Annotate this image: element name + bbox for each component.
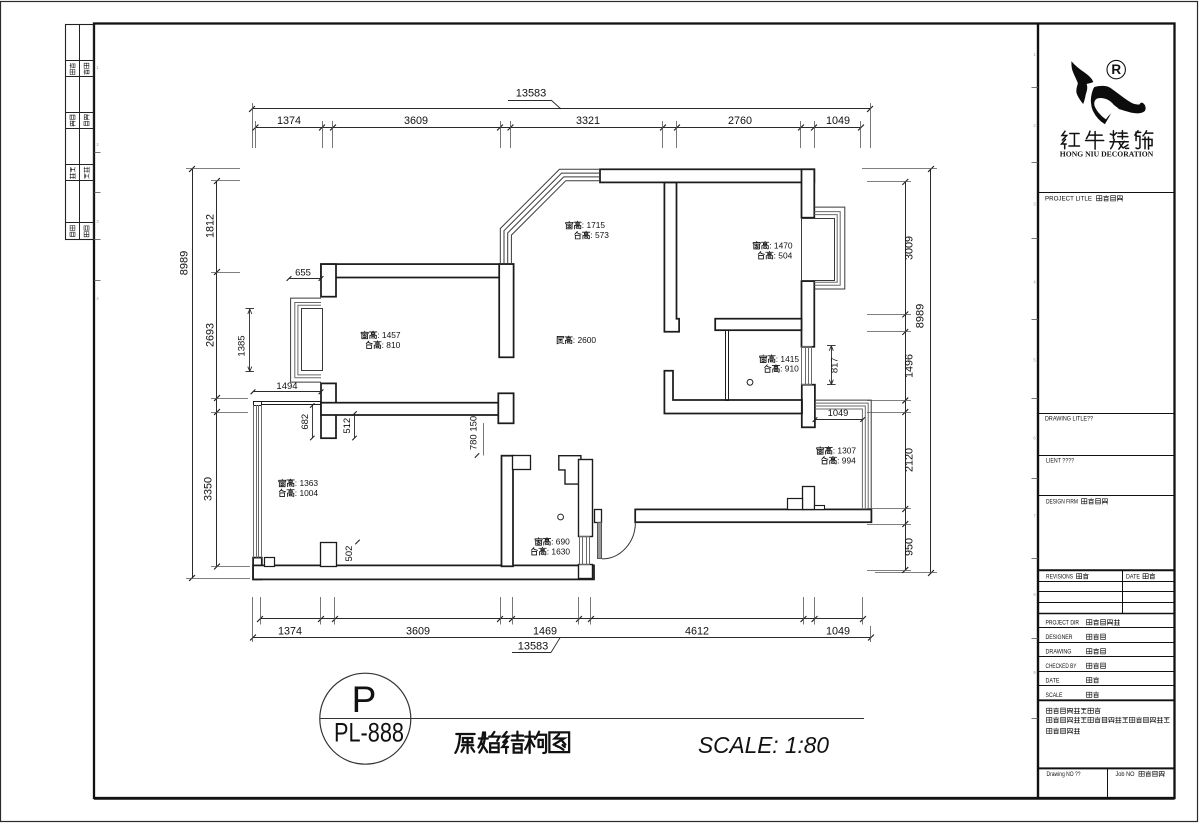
svg-text:2120: 2120 bbox=[904, 448, 916, 472]
svg-text:DRAWING: DRAWING bbox=[1046, 649, 1072, 656]
svg-text:2760: 2760 bbox=[728, 115, 752, 127]
svg-text:Job NO: Job NO bbox=[1116, 771, 1135, 778]
svg-text:PROJECT LITLE: PROJECT LITLE bbox=[1045, 196, 1092, 203]
svg-text:3321: 3321 bbox=[576, 115, 600, 127]
svg-text:1385: 1385 bbox=[237, 335, 248, 356]
svg-text:CHECKED BY: CHECKED BY bbox=[1046, 663, 1077, 670]
svg-text:3609: 3609 bbox=[406, 626, 430, 638]
svg-text:13583: 13583 bbox=[518, 641, 549, 653]
svg-text:: 810: : 810 bbox=[382, 340, 401, 350]
svg-text:: 690: : 690 bbox=[551, 537, 570, 547]
svg-text:3350: 3350 bbox=[203, 477, 215, 501]
svg-text:655: 655 bbox=[295, 268, 311, 279]
svg-text:: 994: : 994 bbox=[837, 455, 856, 465]
svg-text:DESIGNER: DESIGNER bbox=[1046, 634, 1073, 641]
svg-text:R: R bbox=[1111, 62, 1121, 77]
svg-text:1049: 1049 bbox=[828, 408, 849, 418]
svg-text:: 1470: : 1470 bbox=[769, 240, 793, 250]
svg-text:DATE: DATE bbox=[1126, 573, 1140, 580]
svg-text:1812: 1812 bbox=[205, 214, 217, 238]
svg-text:: 1307: : 1307 bbox=[833, 446, 857, 456]
svg-text:DATE: DATE bbox=[1046, 677, 1060, 684]
svg-text:P: P bbox=[352, 679, 377, 720]
svg-text:3009: 3009 bbox=[904, 236, 916, 260]
svg-text:: 573: : 573 bbox=[590, 230, 609, 240]
svg-text:950: 950 bbox=[904, 538, 916, 556]
svg-text:4612: 4612 bbox=[685, 626, 709, 638]
svg-text:: 1630: : 1630 bbox=[547, 546, 571, 556]
svg-text:: 1457: : 1457 bbox=[377, 330, 401, 340]
svg-text:SCALE: 1:80: SCALE: 1:80 bbox=[698, 732, 829, 758]
svg-text:DRAWING LITLE??: DRAWING LITLE?? bbox=[1045, 416, 1093, 423]
svg-text:3609: 3609 bbox=[404, 115, 428, 127]
svg-text:PROJECT DIR: PROJECT DIR bbox=[1046, 620, 1080, 627]
svg-text:8989: 8989 bbox=[179, 251, 191, 275]
svg-text:1494: 1494 bbox=[276, 381, 297, 392]
svg-text:1049: 1049 bbox=[826, 626, 850, 638]
svg-text:: 504: : 504 bbox=[774, 250, 793, 260]
svg-text:1374: 1374 bbox=[277, 115, 301, 127]
svg-text:2693: 2693 bbox=[205, 323, 217, 347]
svg-text:: 1004: : 1004 bbox=[295, 488, 319, 498]
svg-text:502: 502 bbox=[344, 546, 355, 562]
svg-text:13583: 13583 bbox=[516, 88, 547, 100]
svg-text:682: 682 bbox=[300, 414, 311, 430]
svg-text:REVISIONS: REVISIONS bbox=[1046, 573, 1073, 580]
svg-text:512: 512 bbox=[342, 418, 353, 434]
svg-text:: 2600: : 2600 bbox=[573, 335, 597, 345]
svg-text:LIENT ????: LIENT ???? bbox=[1046, 458, 1074, 465]
svg-text:1496: 1496 bbox=[904, 354, 916, 378]
svg-text:1049: 1049 bbox=[826, 115, 850, 127]
svg-text:780 150: 780 150 bbox=[469, 416, 480, 450]
svg-text:: 1363: : 1363 bbox=[295, 478, 319, 488]
svg-text:HONG NIU DECORATION: HONG NIU DECORATION bbox=[1060, 150, 1154, 159]
svg-text:Drawing NO ??: Drawing NO ?? bbox=[1047, 771, 1081, 778]
svg-text:: 1415: : 1415 bbox=[776, 354, 800, 364]
svg-text:PL-888: PL-888 bbox=[334, 718, 404, 748]
svg-text:SCALE: SCALE bbox=[1046, 692, 1063, 699]
svg-text:817: 817 bbox=[830, 357, 841, 373]
svg-text:8989: 8989 bbox=[915, 304, 927, 328]
svg-text:1374: 1374 bbox=[278, 626, 302, 638]
svg-text:DESIGN FIRM: DESIGN FIRM bbox=[1046, 499, 1078, 506]
svg-text:: 1715: : 1715 bbox=[582, 220, 606, 230]
svg-text:: 910: : 910 bbox=[780, 364, 799, 374]
svg-text:1469: 1469 bbox=[533, 626, 557, 638]
